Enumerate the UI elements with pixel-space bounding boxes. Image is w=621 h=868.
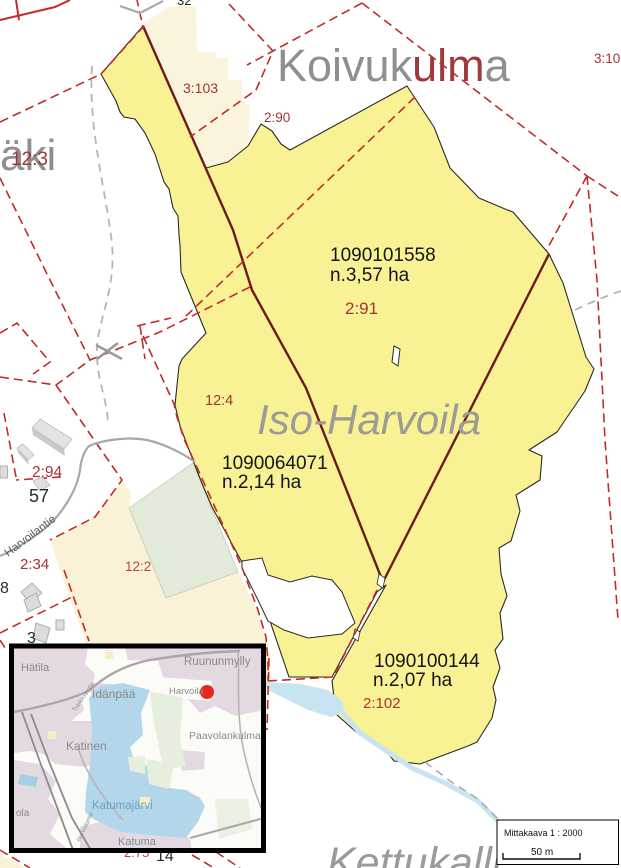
svg-text:32: 32 xyxy=(177,0,191,8)
svg-text:2:91: 2:91 xyxy=(345,299,378,318)
svg-text:12:3: 12:3 xyxy=(11,149,48,170)
svg-text:3:10: 3:10 xyxy=(594,51,620,66)
svg-text:Paavolankulma: Paavolankulma xyxy=(189,730,261,742)
svg-text:50 m: 50 m xyxy=(531,847,553,858)
svg-text:Koivukulma: Koivukulma xyxy=(277,40,511,91)
svg-text:2:102: 2:102 xyxy=(363,695,401,712)
svg-text:Iso-Harvoila: Iso-Harvoila xyxy=(257,396,481,443)
svg-text:1090064071: 1090064071 xyxy=(222,453,328,474)
svg-text:Katinen: Katinen xyxy=(66,739,107,753)
svg-text:1090101558: 1090101558 xyxy=(330,245,436,266)
svg-text:Kettukalli: Kettukalli xyxy=(327,839,503,868)
svg-text:ola: ola xyxy=(16,808,30,819)
svg-text:Harvoila: Harvoila xyxy=(169,686,205,697)
svg-text:57: 57 xyxy=(29,486,49,506)
svg-text:Hätila: Hätila xyxy=(21,662,50,674)
svg-text:n.2,07 ha: n.2,07 ha xyxy=(373,670,453,691)
svg-text:12:2: 12:2 xyxy=(125,559,151,574)
svg-text:Katumajärvi: Katumajärvi xyxy=(92,800,153,812)
svg-text:8: 8 xyxy=(0,580,9,597)
svg-text:1090100144: 1090100144 xyxy=(374,651,480,672)
svg-text:2:94: 2:94 xyxy=(32,464,63,481)
svg-text:Mittakaava 1 : 2000: Mittakaava 1 : 2000 xyxy=(504,828,583,838)
svg-text:2:90: 2:90 xyxy=(264,110,290,125)
svg-text:n.3,57 ha: n.3,57 ha xyxy=(330,265,410,286)
svg-text:3:103: 3:103 xyxy=(183,80,218,96)
svg-text:Idänpää: Idänpää xyxy=(92,687,136,701)
svg-text:Ruununmylly: Ruununmylly xyxy=(184,656,251,668)
svg-text:Katuma: Katuma xyxy=(118,836,157,848)
svg-text:n.2,14 ha: n.2,14 ha xyxy=(222,472,302,493)
svg-text:12:4: 12:4 xyxy=(205,393,233,409)
svg-text:2:34: 2:34 xyxy=(20,556,49,573)
